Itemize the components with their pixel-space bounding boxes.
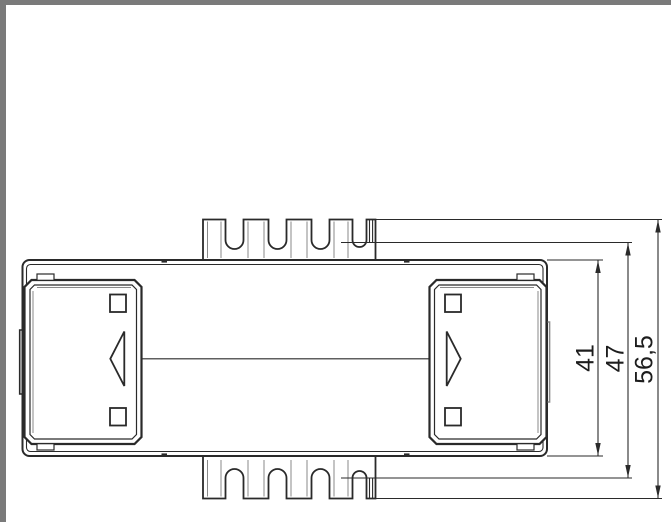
top-edge-nub-right xyxy=(404,259,410,262)
technical-drawing-svg: 41 47 56,5 xyxy=(0,0,671,522)
top-edge-nub-left xyxy=(162,259,168,262)
dim-text-47: 47 xyxy=(602,345,630,373)
right-cap-tab-top xyxy=(517,274,534,280)
page-frame-top xyxy=(0,0,671,5)
page-frame-left xyxy=(0,0,6,522)
right-cap-tab-bottom xyxy=(517,444,534,450)
left-cap-tab-top xyxy=(37,274,54,280)
bottom-edge-nub-left xyxy=(162,453,168,456)
left-cap-tab-bottom xyxy=(37,444,54,450)
dim-text-41: 41 xyxy=(572,344,600,372)
drawing-page: 41 47 56,5 xyxy=(0,0,671,522)
dim-text-56-5: 56,5 xyxy=(631,335,659,384)
right-end-cap xyxy=(430,274,547,450)
bottom-edge-nub-right xyxy=(404,453,410,456)
left-end-cap xyxy=(25,274,142,450)
